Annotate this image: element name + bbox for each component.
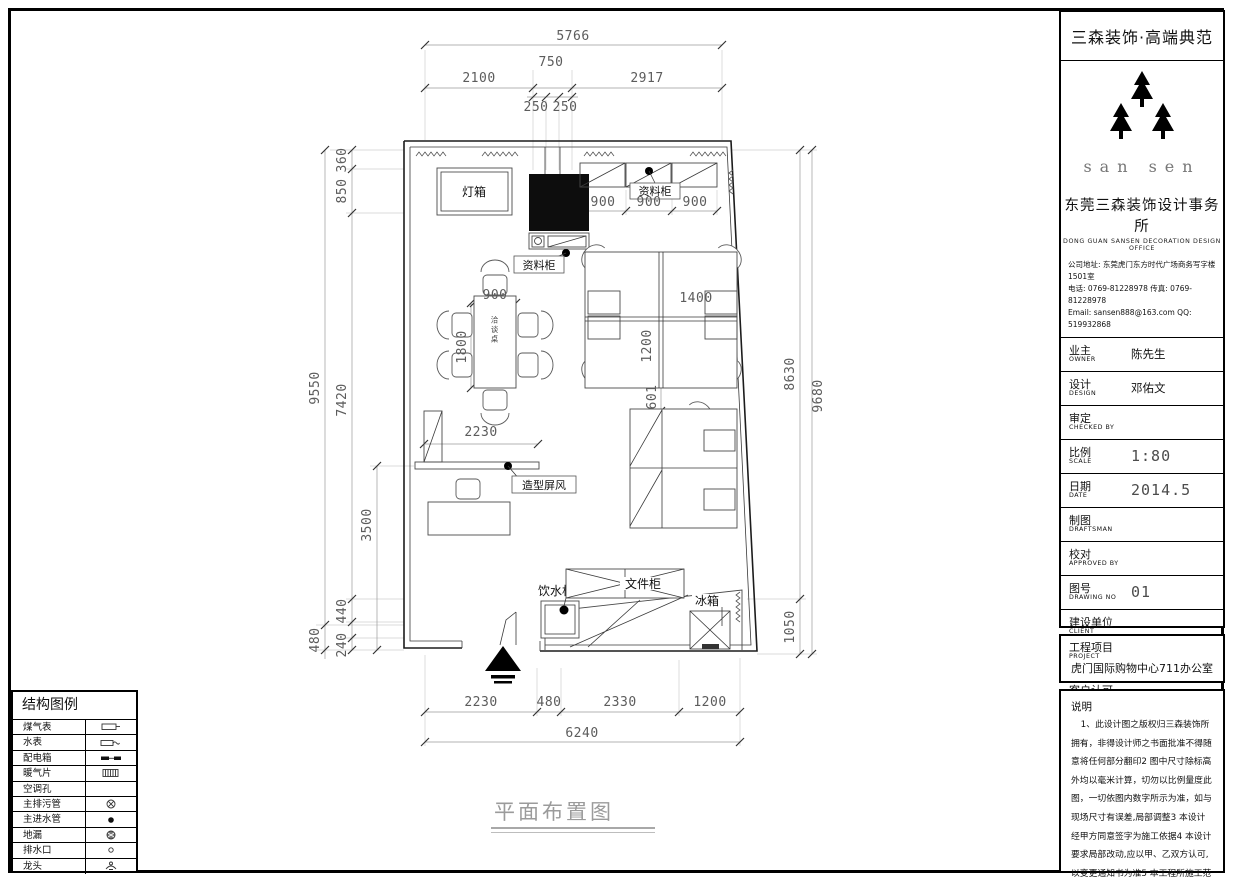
field-drawing-no: 图号 DRAWING NO 01	[1061, 576, 1223, 610]
light-box: 灯箱	[437, 168, 512, 215]
field-label-en: APPROVED BY	[1069, 560, 1119, 567]
dim-cab-3: 900	[683, 195, 708, 210]
table-tag: 洽谈桌	[489, 316, 500, 345]
dim-top-2: 750	[539, 55, 564, 70]
notes-body: 1、此设计图之版权归三森装饰所拥有，非得设计师之书面批准不得随意将任何部分翻印2…	[1061, 716, 1223, 884]
dim-left-360: 360	[335, 148, 350, 173]
caption-underline	[491, 827, 655, 829]
field-label-en: SCALE	[1069, 458, 1092, 465]
legend-label: 地漏	[13, 828, 85, 842]
company-contact: 公司地址: 东莞虎门东方时代广场商务写字楼1501室 电话: 0769-8122…	[1061, 259, 1223, 338]
field-value: 2014.5	[1131, 481, 1191, 499]
legend-label: 排水口	[13, 843, 85, 857]
dim-bottom-total: 6240	[565, 726, 598, 741]
drain-outlet-icon	[85, 843, 136, 857]
entry-arrow-icon	[485, 646, 521, 684]
field-scale: 比例 SCALE 1:80	[1061, 440, 1223, 474]
legend-row: 水表	[13, 735, 136, 750]
field-value: 陈先生	[1131, 346, 1166, 362]
project-label-en: PROJECT	[1069, 653, 1100, 660]
trees-logo-icon	[1097, 69, 1187, 165]
light-box-label: 灯箱	[462, 184, 486, 199]
dim-bottom-4: 1200	[693, 695, 726, 710]
fridge-label: 冰箱	[695, 593, 719, 608]
dim-top-1: 2100	[462, 71, 495, 86]
legend-row: 煤气表	[13, 720, 136, 735]
field-value: 1:80	[1131, 447, 1171, 465]
dim-right-1050: 1050	[783, 610, 798, 643]
dim-cab-1: 900	[591, 195, 616, 210]
legend-label: 水表	[13, 735, 85, 749]
notes-title: 说明	[1071, 699, 1223, 714]
legend-label: 暖气片	[13, 766, 85, 780]
dim-top-sub-1: 250	[524, 100, 549, 115]
top-cabinet-row: 资料柜	[580, 163, 717, 199]
workstation-cluster-top	[576, 239, 746, 389]
legend-row: 空调孔	[13, 782, 136, 797]
floor-drain-icon	[85, 828, 136, 842]
manager-desk	[428, 479, 510, 535]
radiator-icon	[85, 766, 136, 780]
field-label-en: DESIGN	[1069, 390, 1096, 397]
ac-hole-icon	[85, 782, 136, 796]
brand-title: 三森装饰·高端典范	[1061, 12, 1223, 61]
caption-underline-2	[491, 832, 655, 833]
drawing-sheet: 灯箱 资料柜 资料柜	[0, 0, 1235, 884]
title-block: 三森装饰·高端典范 san sen 东莞三森装饰设计事务所 DONG GUAN …	[1059, 10, 1225, 628]
field-date: 日期 DATE 2014.5	[1061, 474, 1223, 508]
legend-panel: 结构图例 煤气表 水表 配电箱 暖气片 空调孔 主排污管 主进水管	[11, 690, 138, 873]
dim-ws-gap: 601	[645, 385, 660, 410]
workstation-cluster-bottom	[630, 396, 737, 532]
dim-left-240: 240	[335, 633, 350, 658]
notes-box: 说明 1、此设计图之版权归三森装饰所拥有，非得设计师之书面批准不得随意将任何部分…	[1059, 689, 1225, 873]
field-value: 邓佑文	[1131, 380, 1166, 396]
gas-meter-icon	[85, 720, 136, 734]
dim-left-850: 850	[335, 179, 350, 204]
legend-label: 空调孔	[13, 782, 85, 796]
dim-top-3: 2917	[630, 71, 663, 86]
faucet-icon	[85, 859, 136, 874]
dim-left-3500: 3500	[360, 508, 375, 541]
dim-screen-w: 2230	[464, 425, 497, 440]
cabinet-col-label: 资料柜	[523, 258, 556, 272]
legend-label: 主进水管	[13, 812, 85, 826]
legend-row: 龙头	[13, 859, 136, 874]
company-name-en: DONG GUAN SANSEN DECORATION DESIGN OFFIC…	[1061, 238, 1223, 252]
field-design: 设计 DESIGN 邓佑文	[1061, 372, 1223, 406]
legend-label: 主排污管	[13, 797, 85, 811]
field-label-en: DRAWING NO	[1069, 594, 1116, 601]
legend-row: 主进水管	[13, 812, 136, 827]
dim-right-8630: 8630	[783, 357, 798, 390]
dim-left-7420: 7420	[335, 383, 350, 416]
plan-caption: 平面布置图	[494, 796, 614, 826]
dim-right-9680: 9680	[811, 379, 826, 412]
dim-table-l: 1800	[455, 330, 470, 363]
project-box: 工程项目 PROJECT 虎门国际购物中心711办公室	[1059, 634, 1225, 683]
water-meter-icon	[85, 735, 136, 749]
field-draftsman: 制图 DRAFTSMAN	[1061, 508, 1223, 542]
field-approved-by: 校对 APPROVED BY	[1061, 542, 1223, 576]
field-label-en: DATE	[1069, 492, 1087, 499]
field-checked-by: 审定 CHECKED BY	[1061, 406, 1223, 440]
company-phone: 电话: 0769-81228978 传真: 0769-81228978	[1068, 283, 1216, 307]
dim-left-outer: 9550	[308, 371, 323, 404]
dim-ws-w: 1400	[679, 291, 712, 306]
field-owner: 业主 OWNER 陈先生	[1061, 338, 1223, 372]
legend-row: 地漏	[13, 828, 136, 843]
dim-ws-h: 1200	[640, 329, 655, 362]
distribution-box-icon	[85, 751, 136, 765]
file-cabinet: 文件柜	[566, 569, 684, 598]
column-data-cabinet: 资料柜	[514, 174, 589, 273]
project-value: 虎门国际购物中心711办公室	[1061, 660, 1223, 676]
field-label-en: DRAFTSMAN	[1069, 526, 1113, 533]
legend-label: 龙头	[13, 859, 85, 874]
sewage-pipe-icon	[85, 797, 136, 811]
legend-row: 排水口	[13, 843, 136, 858]
legend-row: 暖气片	[13, 766, 136, 781]
legend-title: 结构图例	[13, 692, 136, 720]
company-name-cn: 东莞三森装饰设计事务所	[1061, 194, 1223, 236]
water-inlet-icon	[85, 812, 136, 826]
company-logo: san sen	[1061, 61, 1223, 194]
legend-label: 煤气表	[13, 720, 85, 734]
fridge: 冰箱	[690, 593, 730, 649]
screen-label: 造型屏风	[522, 478, 566, 492]
dim-cab-2: 900	[637, 195, 662, 210]
dim-left-480: 480	[308, 628, 323, 653]
company-address: 公司地址: 东莞虎门东方时代广场商务写字楼1501室	[1068, 259, 1216, 283]
dim-bottom-1: 2230	[464, 695, 497, 710]
dim-top-sub-2: 250	[553, 100, 578, 115]
dim-bottom-3: 2330	[603, 695, 636, 710]
field-label-en: CHECKED BY	[1069, 424, 1114, 431]
dim-bottom-2: 480	[537, 695, 562, 710]
company-email: Email: sansen888@163.com QQ: 519932868	[1068, 307, 1216, 331]
floor-plan-drawing: 灯箱 资料柜 资料柜	[0, 0, 1235, 884]
legend-label: 配电箱	[13, 751, 85, 765]
dim-top-total: 5766	[556, 29, 589, 44]
file-cabinet-label: 文件柜	[625, 576, 661, 591]
logo-text: san sen	[1061, 157, 1223, 176]
dim-table-w: 900	[483, 288, 508, 303]
legend-row: 主排污管	[13, 797, 136, 812]
field-label-en: OWNER	[1069, 356, 1096, 363]
dim-left-440: 440	[335, 599, 350, 624]
field-value: 01	[1131, 583, 1151, 601]
legend-row: 配电箱	[13, 751, 136, 766]
